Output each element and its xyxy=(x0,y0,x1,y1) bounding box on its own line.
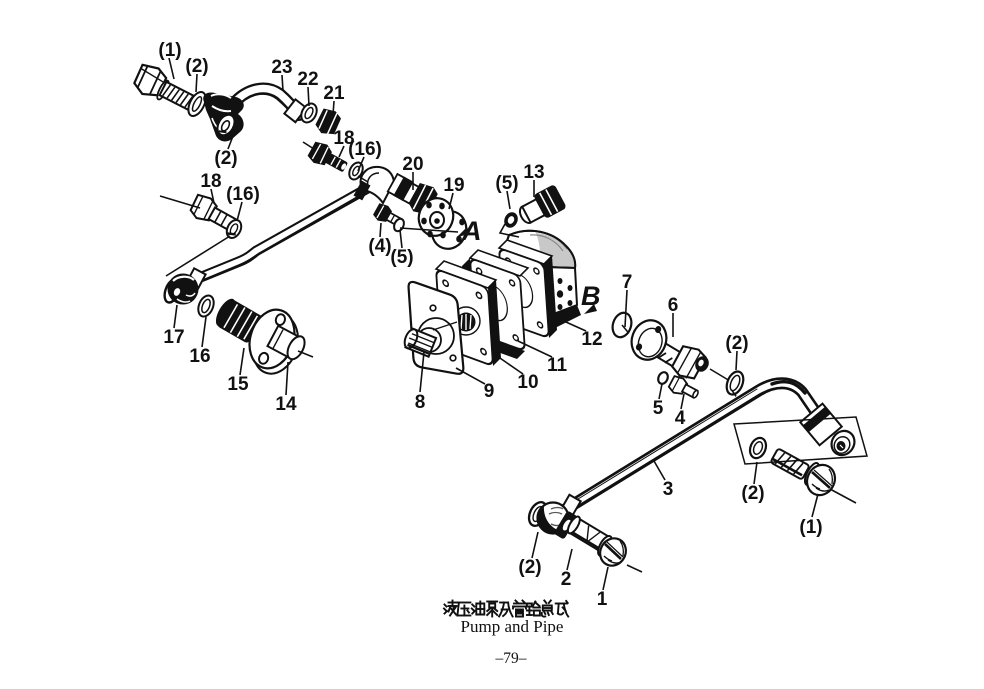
svg-text:12: 12 xyxy=(581,329,602,350)
svg-text:(16): (16) xyxy=(226,184,260,205)
svg-text:10: 10 xyxy=(517,372,538,393)
svg-text:20: 20 xyxy=(402,154,423,175)
svg-text:(2): (2) xyxy=(741,483,764,504)
svg-text:11: 11 xyxy=(547,355,568,376)
svg-text:1: 1 xyxy=(597,589,608,610)
svg-text:16: 16 xyxy=(189,346,210,367)
svg-text:22: 22 xyxy=(297,69,318,90)
svg-text:14: 14 xyxy=(275,394,297,415)
svg-text:9: 9 xyxy=(484,381,495,402)
svg-text:2: 2 xyxy=(561,569,572,590)
svg-text:8: 8 xyxy=(415,392,426,413)
svg-text:15: 15 xyxy=(227,374,249,395)
svg-text:–79–: –79– xyxy=(495,650,527,667)
svg-text:(5): (5) xyxy=(390,247,413,268)
svg-text:Pump and Pipe: Pump and Pipe xyxy=(461,617,564,636)
svg-text:19: 19 xyxy=(443,175,464,196)
svg-text:(1): (1) xyxy=(158,40,181,61)
svg-text:4: 4 xyxy=(675,408,686,429)
svg-text:(16): (16) xyxy=(348,139,382,160)
svg-text:(4): (4) xyxy=(368,236,391,257)
svg-text:3: 3 xyxy=(663,479,674,500)
svg-text:(5): (5) xyxy=(495,173,518,194)
svg-text:(2): (2) xyxy=(725,333,748,354)
svg-text:17: 17 xyxy=(163,327,184,348)
svg-text:23: 23 xyxy=(271,57,292,78)
svg-text:5: 5 xyxy=(653,398,664,419)
svg-text:6: 6 xyxy=(668,295,679,316)
svg-text:(2): (2) xyxy=(185,56,208,77)
svg-text:B: B xyxy=(581,281,601,311)
svg-text:(1): (1) xyxy=(799,517,822,538)
svg-text:7: 7 xyxy=(622,272,633,293)
svg-text:(2): (2) xyxy=(214,148,237,169)
svg-text:13: 13 xyxy=(523,162,544,183)
svg-text:21: 21 xyxy=(323,83,345,104)
svg-text:(2): (2) xyxy=(518,557,541,578)
svg-text:18: 18 xyxy=(200,171,221,192)
